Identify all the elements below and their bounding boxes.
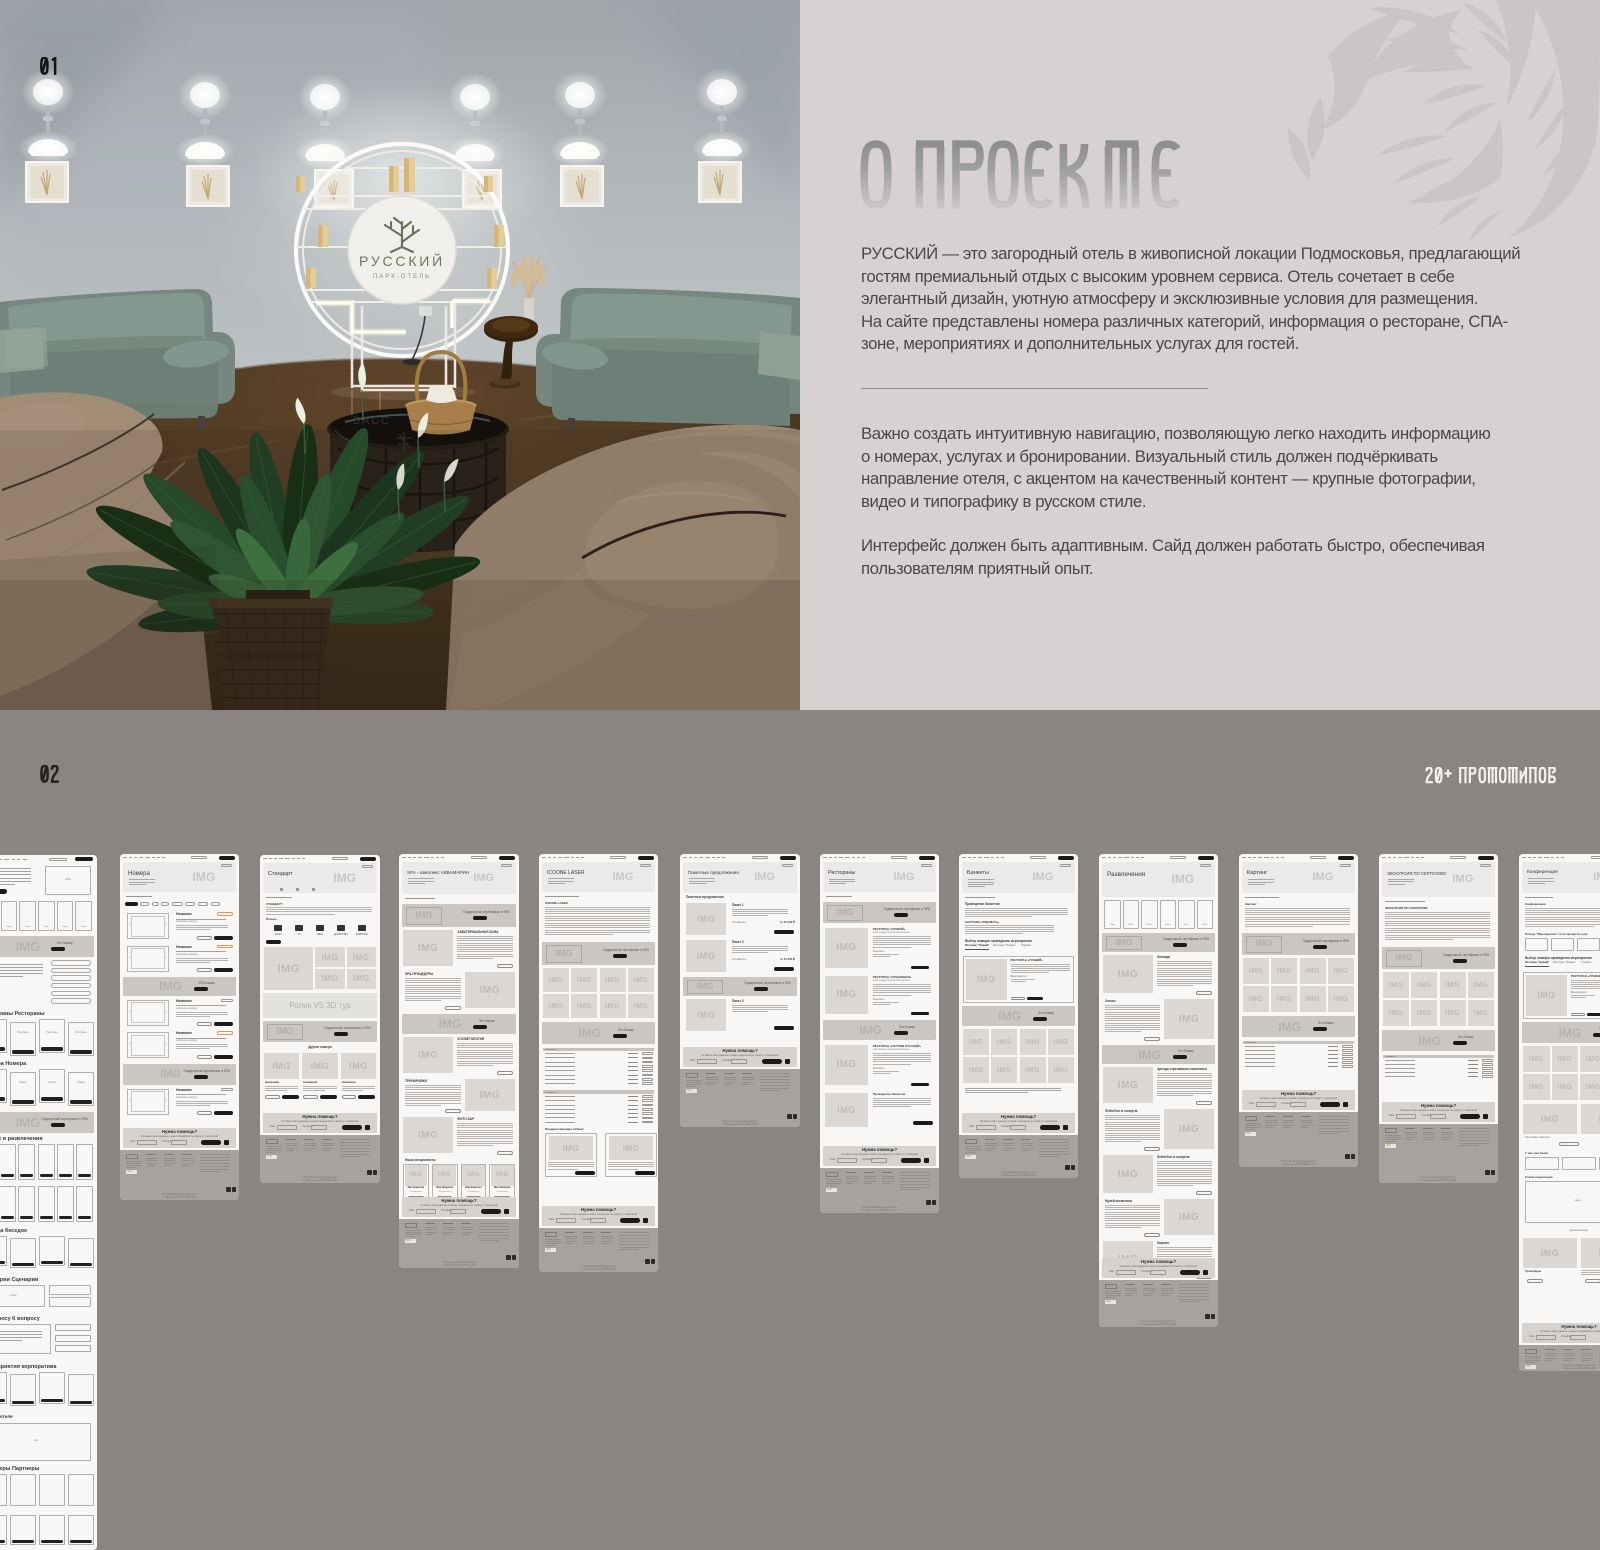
svg-text:ВАСС: ВАСС (353, 415, 391, 427)
svg-text:РУССКИЙ: РУССКИЙ (359, 252, 445, 269)
svg-text:ПАРК-ОТЕЛЬ: ПАРК-ОТЕЛЬ (373, 274, 431, 280)
